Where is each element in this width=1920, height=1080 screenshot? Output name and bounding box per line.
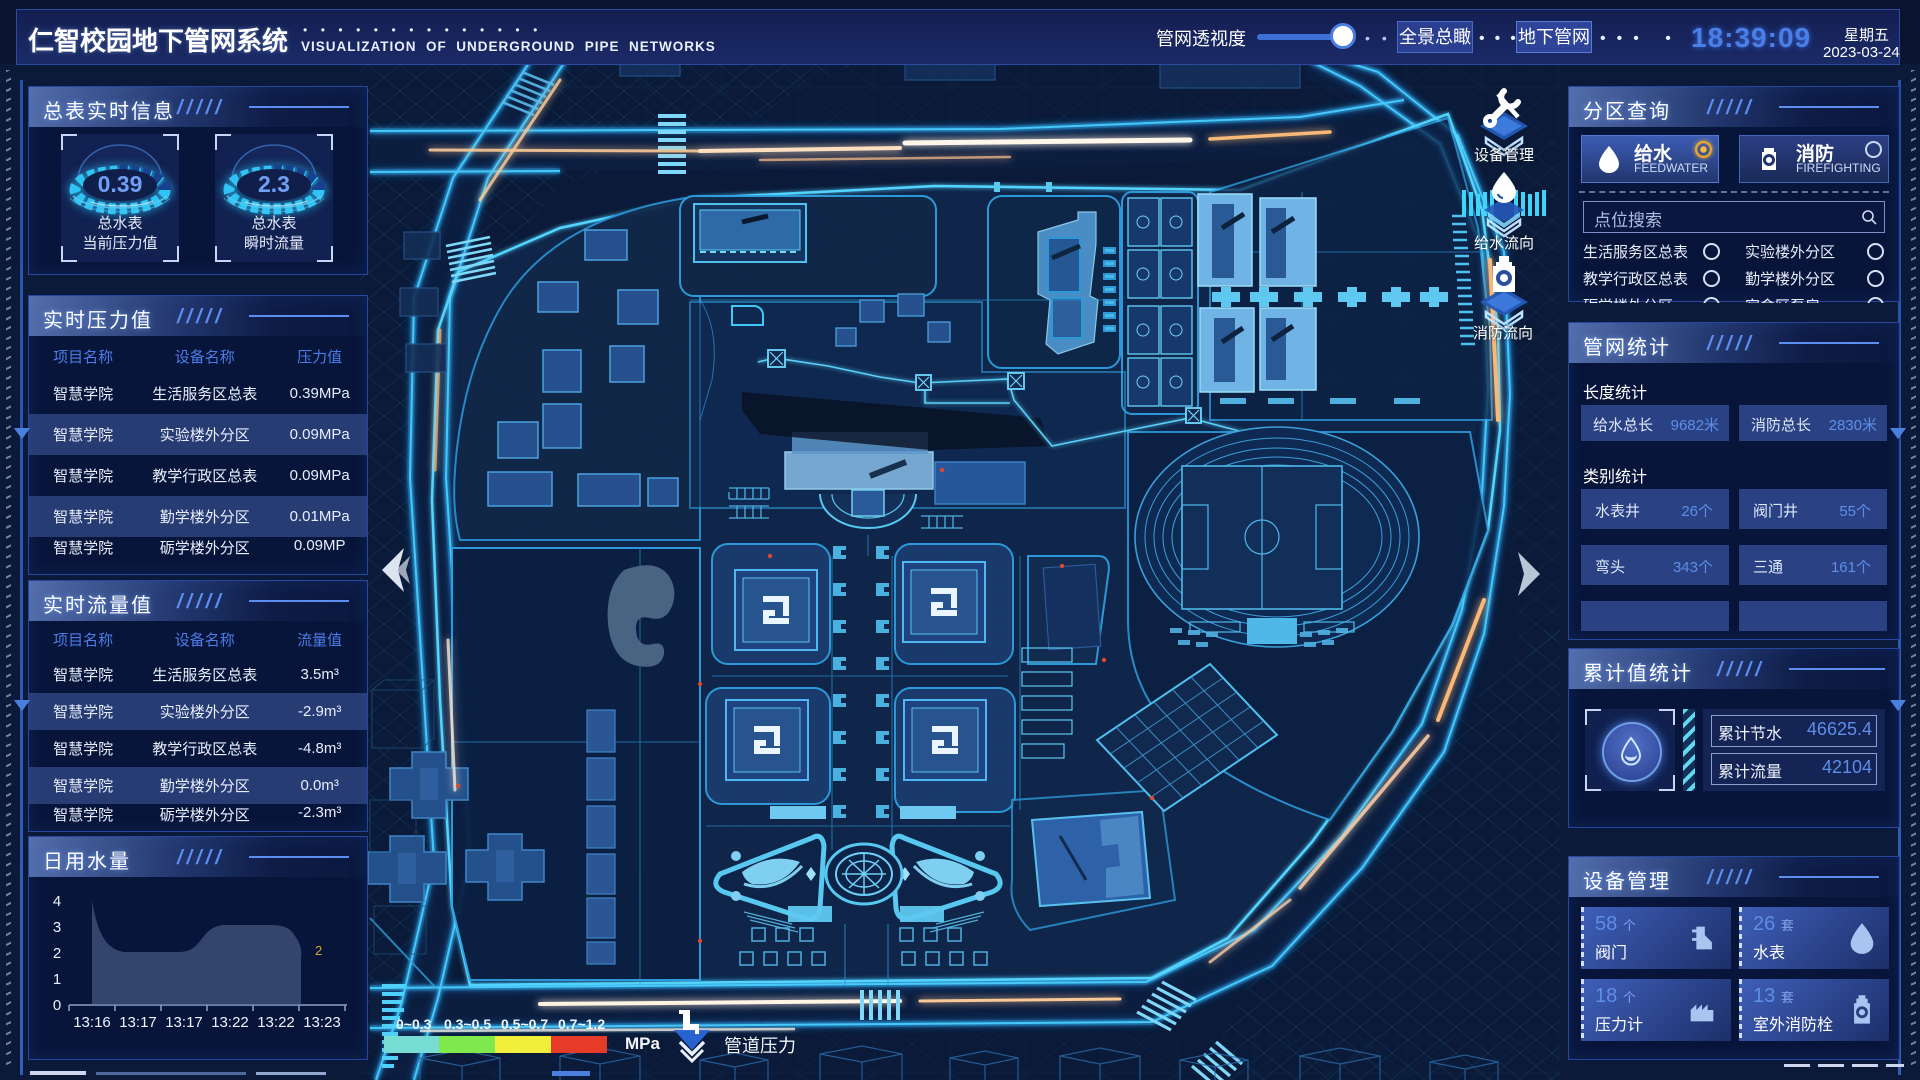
- svg-text:0.39: 0.39: [98, 171, 143, 197]
- svg-text:0: 0: [53, 997, 61, 1014]
- svg-text:13:22: 13:22: [211, 1014, 249, 1031]
- svg-text:2: 2: [315, 943, 322, 958]
- svg-text:13:17: 13:17: [119, 1014, 157, 1031]
- svg-text:13:22: 13:22: [257, 1014, 295, 1031]
- svg-text:2.3: 2.3: [258, 171, 290, 197]
- svg-text:13:23: 13:23: [303, 1014, 341, 1031]
- svg-text:3: 3: [53, 919, 61, 936]
- svg-text:1: 1: [53, 971, 61, 988]
- svg-text:13:16: 13:16: [73, 1014, 111, 1031]
- svg-text:13:17: 13:17: [165, 1014, 203, 1031]
- svg-text:2: 2: [53, 945, 61, 962]
- svg-text:4: 4: [53, 893, 61, 910]
